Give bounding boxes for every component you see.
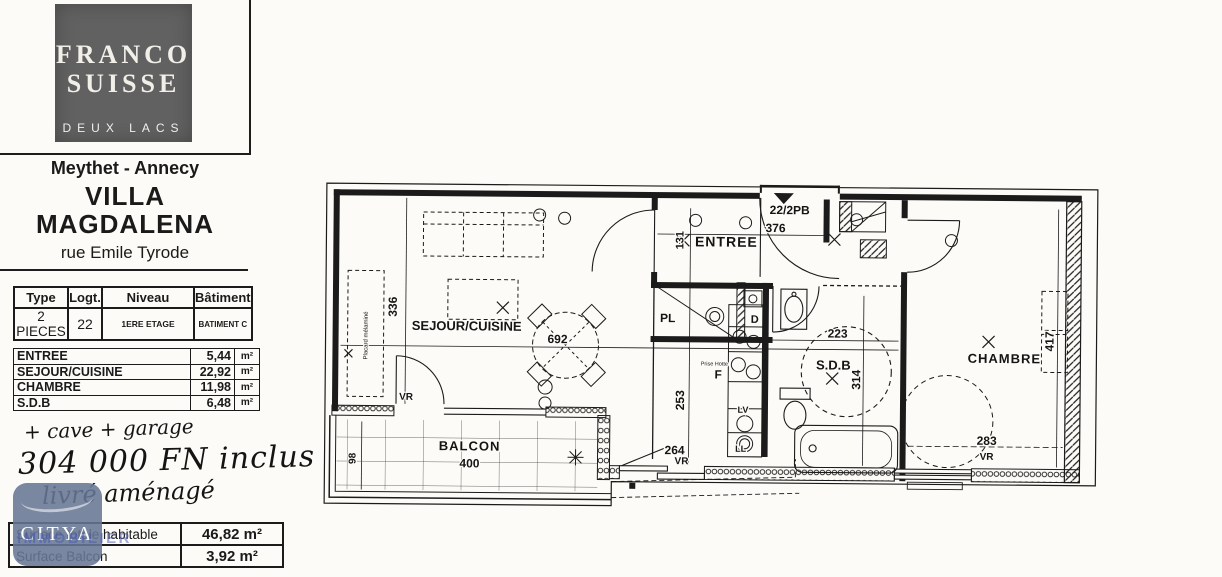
- info-value-batiment: BATIMENT C: [194, 308, 252, 340]
- area-name: S.D.B: [14, 395, 191, 411]
- areas-row-sdb: S.D.B 6,48 m²: [14, 395, 260, 411]
- info-header-batiment: Bâtiment: [194, 287, 252, 308]
- dim-283: 283: [977, 434, 997, 448]
- sofa-icon: [423, 212, 543, 257]
- franco-suisse-logo: FRANCO SUISSE DEUX LACS: [55, 4, 192, 142]
- label-vr-cuisine: VR: [674, 456, 689, 467]
- divider-horizontal-top: [0, 153, 251, 155]
- chambre-window: [894, 469, 971, 490]
- handwritten-note-price: 304 000 FN inclus: [18, 439, 316, 482]
- areas-row-chambre: CHAMBRE 11,98 m²: [14, 380, 260, 396]
- drain-mark: [629, 483, 635, 489]
- label-balcon: BALCON: [439, 438, 501, 454]
- label-sdb: S.D.B: [816, 357, 851, 372]
- dim-131: 131: [674, 231, 686, 249]
- hob-icon: [731, 358, 760, 379]
- area-unit: m²: [235, 364, 260, 380]
- label-f: F: [715, 368, 722, 382]
- divider-vertical: [249, 0, 251, 154]
- bathtub-icon: [794, 425, 897, 473]
- logo-line-2: SUISSE: [55, 69, 192, 98]
- washbasin-icon: [781, 289, 807, 329]
- dim-692: 692: [547, 332, 567, 346]
- floor-plan: SEJOUR/CUISINE692336ENTREE13137622/2PBPL…: [308, 173, 1203, 577]
- area-name: SEJOUR/CUISINE: [14, 364, 191, 380]
- kitchen-island-icon: [448, 279, 518, 320]
- sdb-fixtures: [779, 289, 899, 473]
- location-line: Meythet - Annecy: [0, 158, 250, 179]
- label-unit-number: 22/2PB: [770, 203, 810, 217]
- area-unit: m²: [235, 380, 260, 396]
- label-d: D: [751, 314, 759, 326]
- radiator-icon: [860, 240, 886, 258]
- label-vr-sejour: VR: [399, 392, 414, 403]
- water-heater-icon: [706, 307, 724, 325]
- areas-row-entree: ENTREE 5,44 m²: [14, 349, 260, 365]
- floor-plan-svg: SEJOUR/CUISINE692336ENTREE13137622/2PBPL…: [308, 173, 1203, 577]
- info-value-type: 2 PIECES: [14, 308, 68, 340]
- balcony-tiles: [336, 419, 598, 491]
- citya-swoosh-decoration: [20, 485, 94, 515]
- dim-264: 264: [665, 443, 685, 457]
- area-name: ENTREE: [14, 349, 191, 365]
- project-title-line1: VILLA: [0, 181, 250, 212]
- sliding-door-icon: [619, 448, 704, 480]
- label-chambre: CHAMBRE: [968, 351, 1042, 367]
- sejour-door-arc: [592, 209, 655, 272]
- dishwasher-icon: [737, 416, 753, 432]
- info-header-logt: Logt.: [68, 287, 102, 308]
- dim-336: 336: [386, 296, 400, 316]
- area-value: 6,48: [191, 395, 235, 411]
- logo-line-1: FRANCO: [55, 40, 192, 69]
- label-ll: LL: [735, 444, 747, 454]
- areas-row-sejour: SEJOUR/CUISINE 22,92 m²: [14, 364, 260, 380]
- info-value-niveau: 1ERE ETAGE: [102, 308, 194, 340]
- area-unit: m²: [235, 395, 260, 411]
- area-value: 11,98: [191, 380, 235, 396]
- citya-agency-badge: CITYA: [13, 483, 102, 566]
- label-sejour-cuisine: SEJOUR/CUISINE: [412, 318, 522, 334]
- area-value: 5,44: [191, 349, 235, 365]
- dim-314: 314: [849, 369, 863, 389]
- dim-98: 98: [347, 452, 358, 464]
- info-header-niveau: Niveau: [102, 287, 194, 308]
- entry-tech: [839, 202, 886, 258]
- dim-253: 253: [673, 390, 687, 410]
- citya-subtitle-watermark: IMMOBILIER: [17, 530, 132, 547]
- switch-x-marks: [344, 229, 995, 386]
- scanned-floor-plan-sheet: FRANCO SUISSE DEUX LACS Meythet - Annecy…: [0, 0, 1222, 577]
- landing-walls: [760, 185, 840, 194]
- label-lv: LV: [737, 405, 748, 415]
- toilet-icon: [780, 388, 810, 429]
- label-vr-chambre: VR: [980, 452, 995, 463]
- electrical-panel-icon: [840, 202, 886, 232]
- street-line: rue Emile Tyrode: [0, 243, 250, 263]
- label-pl: PL: [660, 311, 675, 325]
- area-unit: m²: [235, 349, 260, 365]
- balcony-group: [329, 415, 800, 501]
- label-placard: Placard mélaminé: [363, 311, 369, 360]
- total-value: 3,92 m²: [181, 545, 283, 567]
- snowflake-mark: [567, 449, 583, 465]
- total-value: 46,82 m²: [181, 523, 283, 545]
- info-header-type: Type: [14, 287, 68, 308]
- party-wall-hatched: [1064, 202, 1081, 483]
- kitchen-counter: [728, 305, 763, 457]
- area-name: CHAMBRE: [14, 380, 191, 396]
- info-table: Type Logt. Niveau Bâtiment 2 PIECES 22 1…: [13, 286, 253, 341]
- area-value: 22,92: [191, 364, 235, 380]
- dim-400: 400: [459, 456, 479, 470]
- dim-417: 417: [1042, 331, 1056, 351]
- bay-window-sill: [444, 408, 546, 415]
- logo-line-3: DEUX LACS: [55, 121, 192, 135]
- dim-223: 223: [828, 327, 848, 341]
- handwritten-note-cave-garage: + cave + garage: [24, 414, 194, 444]
- kitchen-block: [728, 305, 763, 457]
- dim-376: 376: [765, 221, 785, 235]
- project-title-line2: MAGDALENA: [0, 209, 250, 240]
- divider-horizontal-title: [0, 269, 248, 271]
- info-value-logt: 22: [68, 308, 102, 340]
- label-entree: ENTREE: [695, 233, 758, 250]
- areas-table: ENTREE 5,44 m² SEJOUR/CUISINE 22,92 m² C…: [13, 348, 260, 411]
